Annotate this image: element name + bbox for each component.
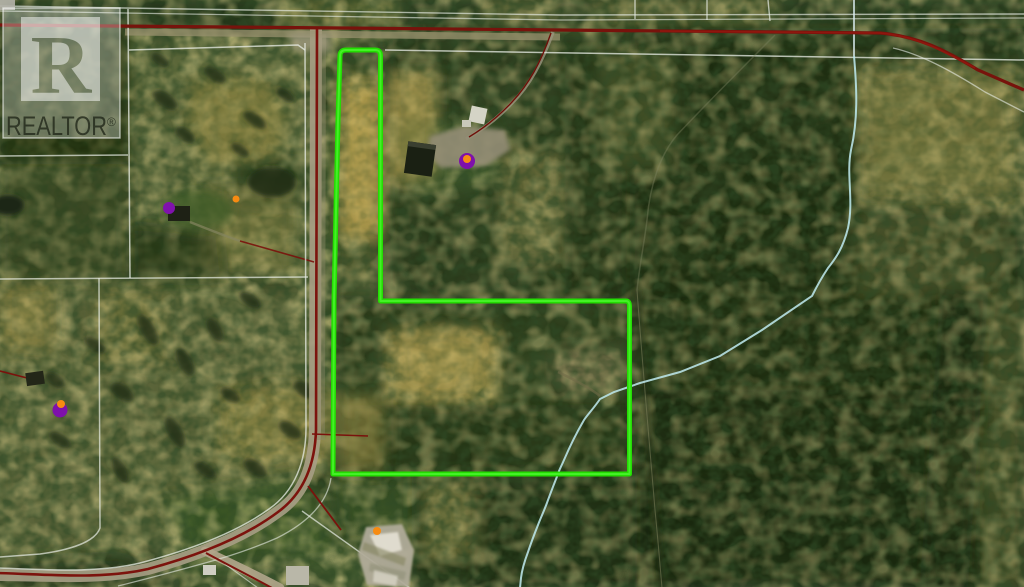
svg-text:REALTOR: REALTOR [6,111,107,141]
svg-text:®: ® [107,115,116,129]
